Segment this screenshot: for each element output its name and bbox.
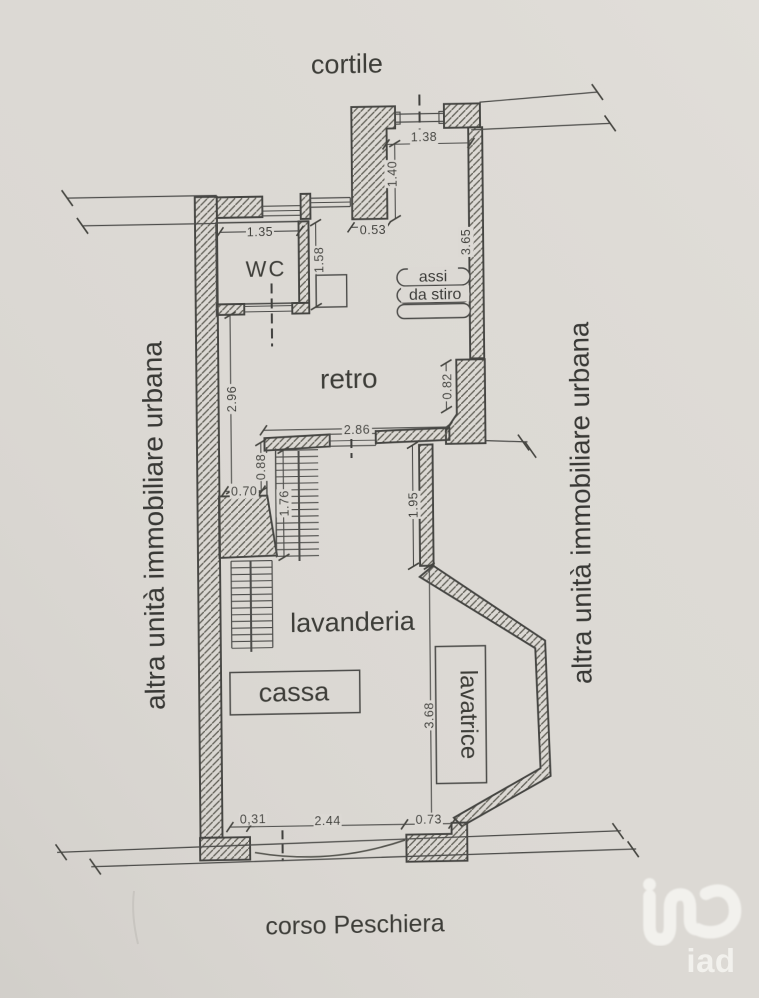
svg-text:assi: assi [419, 268, 448, 286]
svg-text:lavatrice: lavatrice [455, 670, 483, 760]
svg-text:0.53: 0.53 [360, 223, 386, 237]
svg-text:lavanderia: lavanderia [290, 606, 416, 638]
svg-text:1.76: 1.76 [277, 490, 291, 517]
svg-text:0.82: 0.82 [440, 373, 454, 400]
svg-text:altra unità immobiliare urbana: altra unità immobiliare urbana [563, 321, 597, 684]
svg-text:altra unità immobiliare urbana: altra unità immobiliare urbana [137, 341, 171, 711]
svg-text:1.38: 1.38 [411, 130, 437, 144]
svg-text:1.40: 1.40 [385, 161, 399, 188]
svg-text:retro: retro [320, 363, 378, 395]
svg-text:cortile: cortile [311, 48, 383, 79]
svg-text:0.73: 0.73 [416, 812, 442, 826]
svg-text:iad: iad [686, 942, 735, 979]
svg-text:1.35: 1.35 [247, 225, 273, 239]
svg-text:1.58: 1.58 [312, 247, 326, 274]
svg-text:0.88: 0.88 [254, 454, 268, 481]
svg-text:3.65: 3.65 [459, 229, 473, 256]
svg-text:0.70: 0.70 [231, 484, 257, 498]
svg-text:0,31: 0,31 [240, 812, 266, 826]
svg-text:2.96: 2.96 [225, 386, 239, 413]
svg-text:WC: WC [246, 256, 287, 282]
svg-text:1.95: 1.95 [406, 492, 420, 519]
svg-text:2.86: 2.86 [344, 423, 370, 437]
svg-text:da stiro: da stiro [409, 286, 462, 304]
svg-text:corso Peschiera: corso Peschiera [265, 909, 445, 940]
svg-text:cassa: cassa [259, 676, 331, 707]
svg-text:3.68: 3.68 [422, 702, 436, 729]
svg-text:2.44: 2.44 [314, 814, 340, 828]
